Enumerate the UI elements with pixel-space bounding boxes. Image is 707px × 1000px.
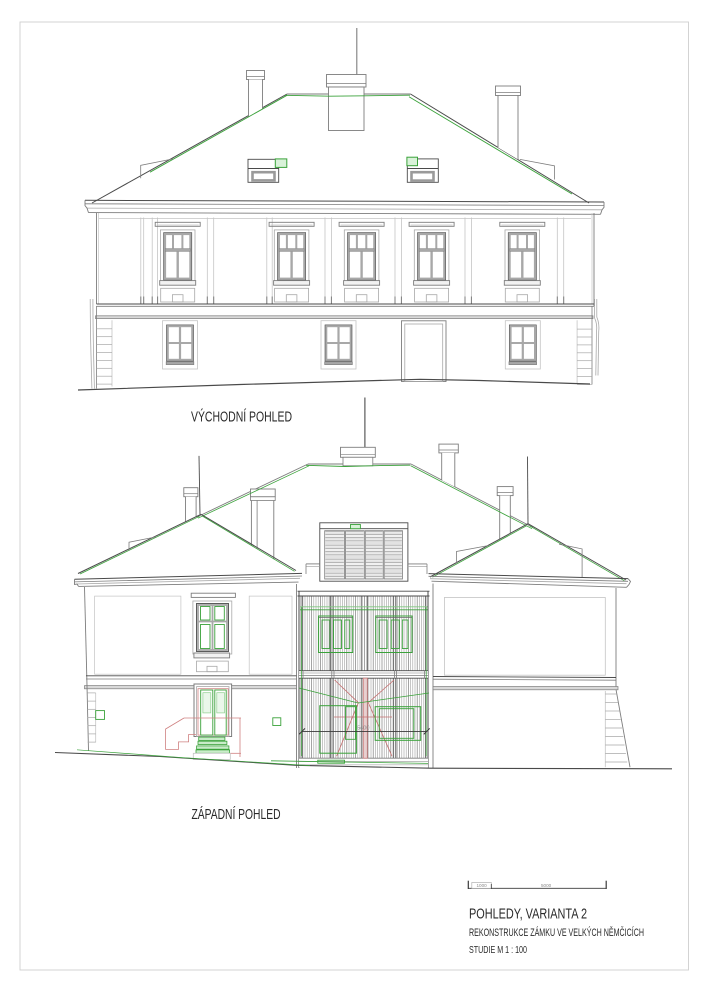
svg-text:5400: 5400 bbox=[357, 725, 369, 731]
svg-text:1000: 1000 bbox=[477, 883, 488, 888]
svg-text:VÝCHODNÍ POHLED: VÝCHODNÍ POHLED bbox=[191, 409, 292, 426]
svg-text:ZÁPADNÍ POHLED: ZÁPADNÍ POHLED bbox=[192, 806, 281, 823]
svg-text:POHLEDY, VARIANTA 2: POHLEDY, VARIANTA 2 bbox=[469, 905, 587, 922]
svg-text:REKONSTRUKCE ZÁMKU VE VELKÝCH: REKONSTRUKCE ZÁMKU VE VELKÝCH NĚMČICÍCH bbox=[469, 926, 644, 939]
svg-text:5000: 5000 bbox=[541, 883, 552, 888]
svg-text:STUDIE M 1 : 100: STUDIE M 1 : 100 bbox=[469, 945, 527, 956]
